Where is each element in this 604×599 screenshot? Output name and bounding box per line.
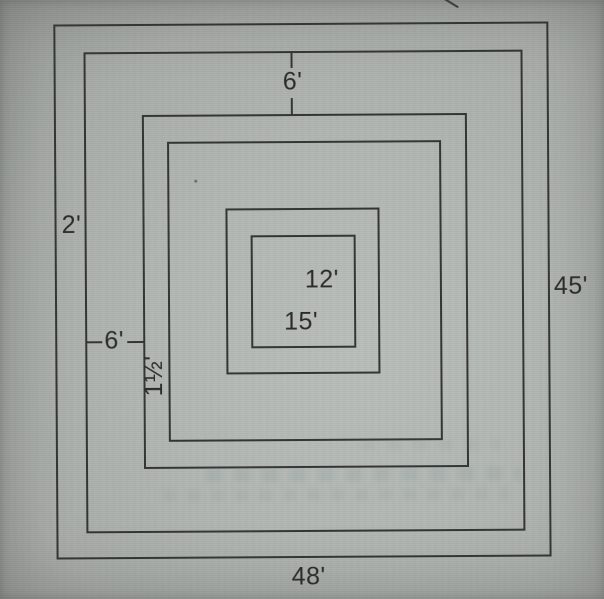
- paper-speck: [194, 180, 197, 183]
- left-dimension-tick-right: [127, 341, 144, 343]
- nested-rectangles-diagram: 6' 2' 6' 1½' 12' 15' 45' 48': [0, 0, 604, 599]
- stray-pen-mark: [444, 0, 459, 9]
- label-top-gap: 6': [283, 67, 303, 96]
- left-dimension-tick-left: [86, 341, 102, 343]
- label-right-side: 45': [554, 272, 588, 301]
- label-innermost-width: 12': [305, 265, 339, 294]
- top-dimension-tick-lower: [291, 98, 293, 115]
- label-left-inner-gap: 1½': [140, 355, 169, 396]
- label-left-outer-gap: 2': [62, 211, 82, 240]
- label-bottom-side: 48': [292, 562, 326, 591]
- label-left-middle-gap: 6': [104, 327, 124, 356]
- label-innermost-height: 15': [284, 307, 318, 336]
- book-page-photo: 6' 2' 6' 1½' 12' 15' 45' 48': [0, 0, 604, 599]
- top-dimension-tick-upper: [290, 52, 292, 68]
